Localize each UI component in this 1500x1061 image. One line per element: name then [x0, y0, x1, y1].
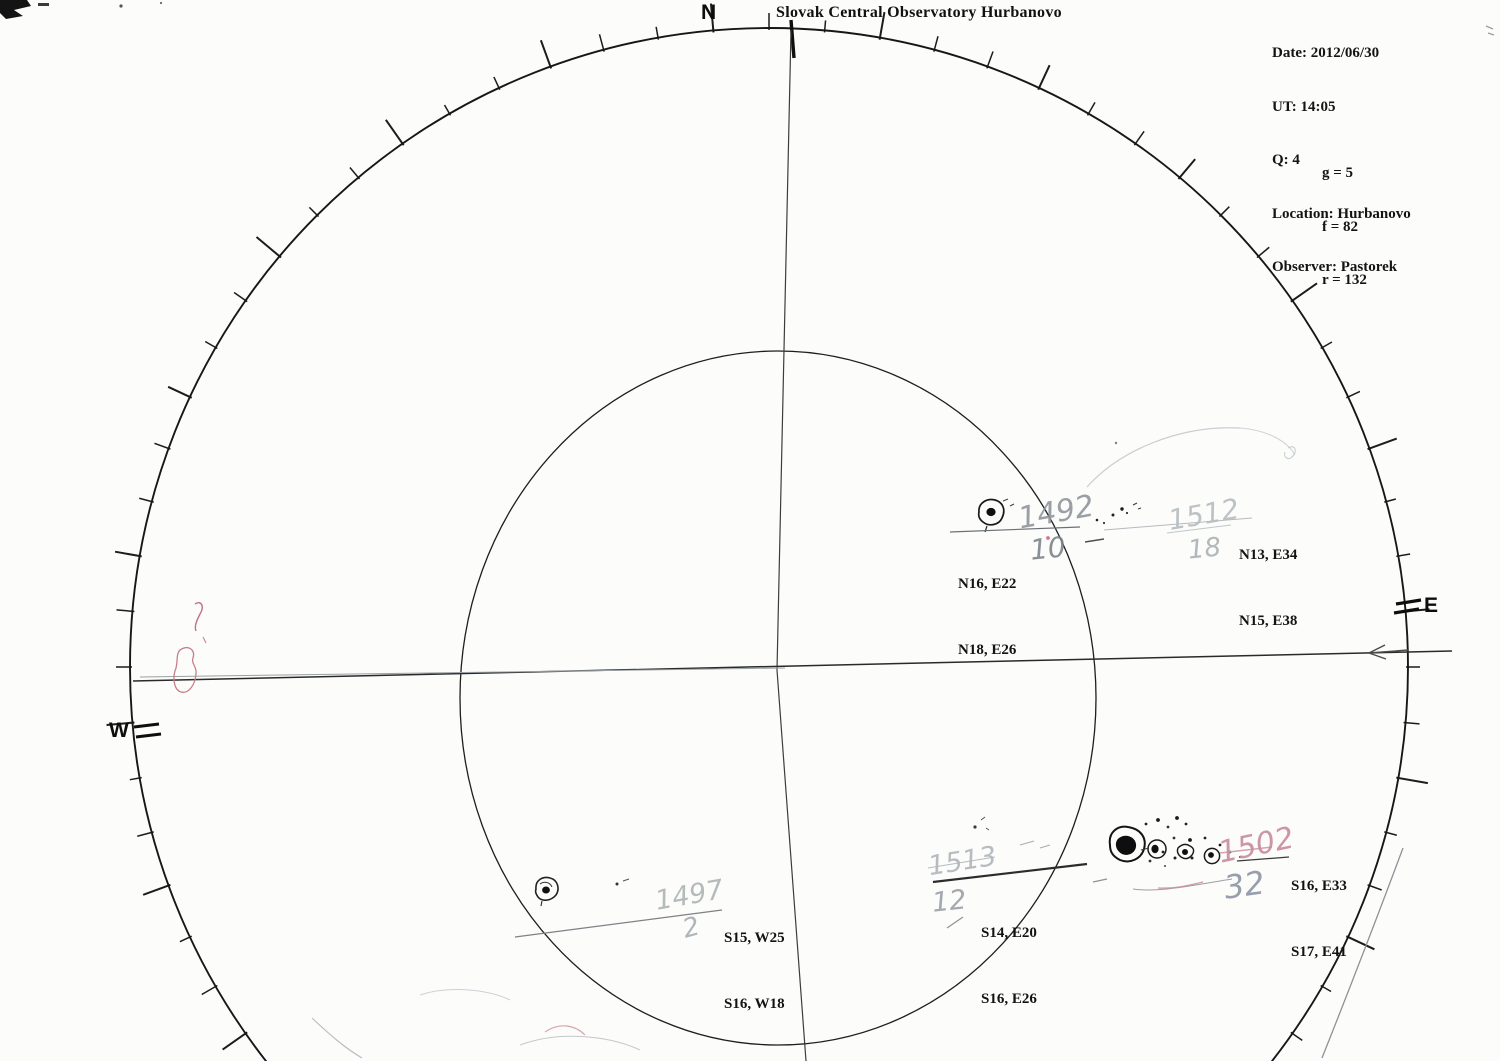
group-label-south-inner: S14, E20 S16, E26	[981, 878, 1037, 1054]
spots-count-line: f = 82	[1322, 219, 1367, 237]
group-label-southwest: S15, W25 S16, W18	[724, 883, 785, 1059]
coord-line: S14, E20	[981, 922, 1037, 944]
group-label-north-outer: N13, E34 N15, E38	[1239, 500, 1297, 676]
west-double-tick	[134, 724, 161, 737]
north-label: N	[701, 1, 716, 25]
coord-line: S15, W25	[724, 927, 785, 949]
coord-line: N16, E22	[958, 573, 1016, 595]
coord-line: N18, E26	[958, 639, 1016, 661]
group-label-south-outer: S16, E33 S17, E41	[1291, 831, 1347, 1007]
coord-line: S16, W18	[724, 993, 785, 1015]
coord-line: N15, E38	[1239, 610, 1297, 632]
coord-line: N13, E34	[1239, 544, 1297, 566]
sunspot-statistics: g = 5 f = 82 r = 132	[1322, 129, 1367, 326]
date-line: Date: 2012/06/30	[1272, 45, 1411, 63]
ut-line: UT: 14:05	[1272, 99, 1411, 117]
scan-artifacts	[0, 0, 1494, 35]
handwritten-spot-count: 12	[930, 884, 967, 918]
handwritten-spot-count: 32	[1222, 863, 1268, 906]
sunspot-drawing-sheet: N Slovak Central Observatory Hurbanovo D…	[0, 0, 1500, 1061]
north-cardinal-tick	[791, 20, 794, 58]
coord-line: S16, E26	[981, 988, 1037, 1010]
coord-line: S17, E41	[1291, 941, 1347, 963]
group-label-north-inner: N16, E22 N18, E26	[958, 529, 1016, 705]
wolf-number-line: r = 132	[1322, 272, 1367, 290]
west-label: W	[109, 719, 129, 743]
observatory-title: Slovak Central Observatory Hurbanovo	[776, 4, 1062, 22]
groups-count-line: g = 5	[1322, 165, 1367, 183]
coord-line: S16, E33	[1291, 875, 1347, 897]
horizontal-axis-double	[140, 668, 785, 677]
handwritten-spot-count: 18	[1187, 532, 1223, 565]
faculae-sketch-north	[1087, 428, 1295, 487]
east-label: E	[1424, 594, 1438, 618]
handwritten-spot-count: 10	[1028, 530, 1067, 567]
